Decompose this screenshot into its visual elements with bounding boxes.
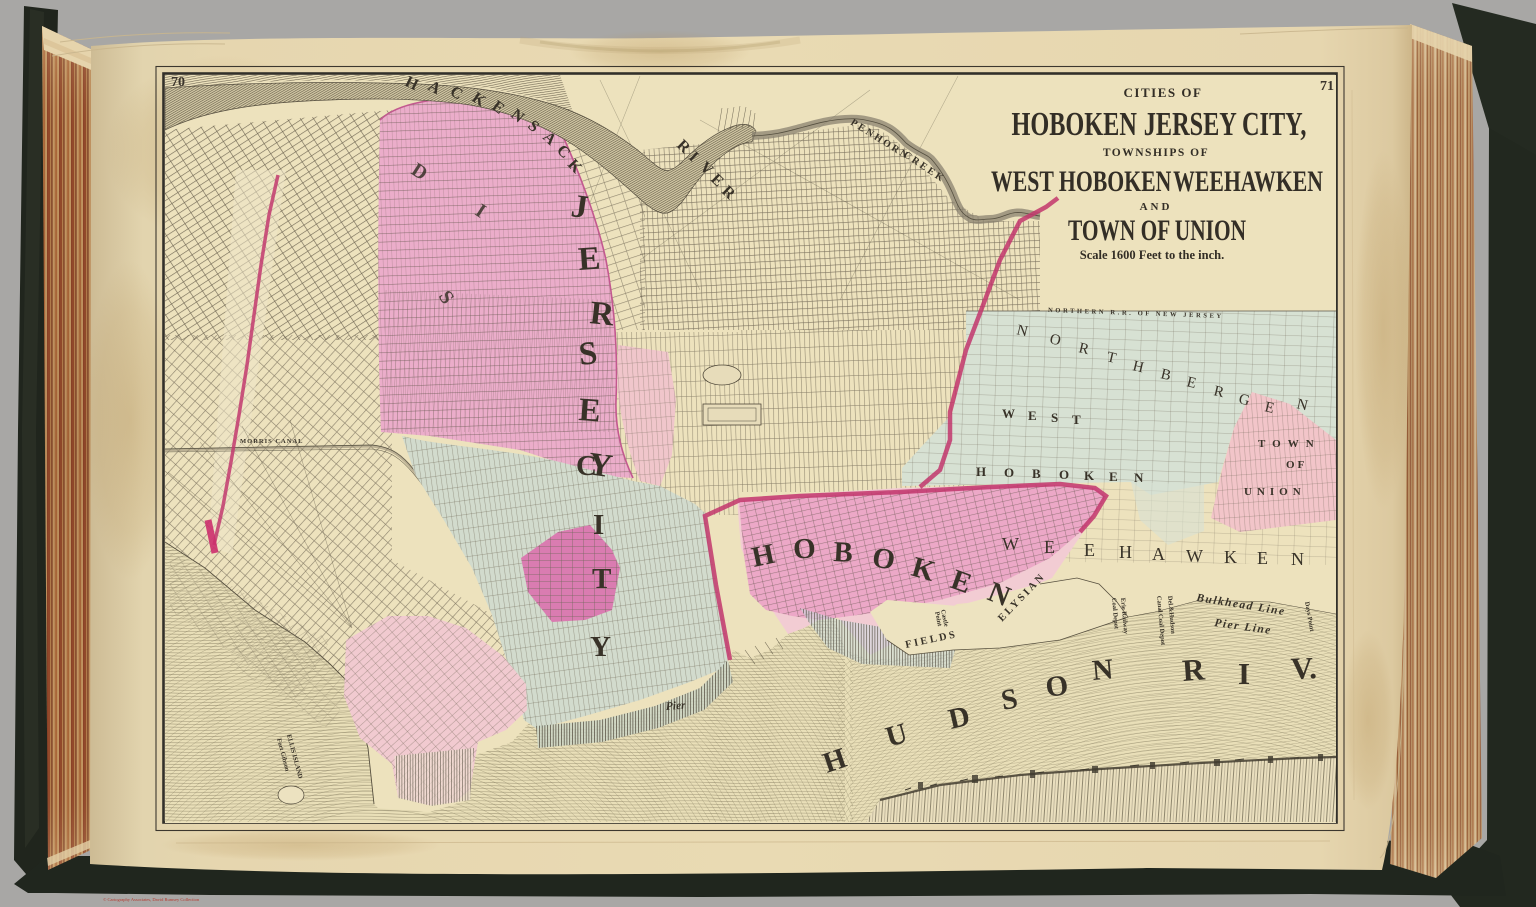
svg-text:K: K [1224,547,1237,567]
svg-text:R: R [1181,651,1206,688]
svg-text:W: W [1186,546,1203,566]
svg-text:E: E [1257,548,1268,568]
svg-text:E: E [577,392,601,429]
svg-text:O: O [1059,467,1069,482]
svg-text:Y: Y [590,631,611,663]
svg-text:A: A [1152,544,1165,564]
svg-text:OF: OF [1286,459,1307,471]
svg-text:N: N [1291,549,1304,569]
svg-text:S: S [577,335,599,373]
svg-text:H: H [976,464,986,479]
svg-text:TOWN: TOWN [1258,438,1321,450]
svg-text:T: T [1072,412,1081,427]
svg-text:E: E [1028,408,1037,423]
svg-text:H: H [1119,542,1132,562]
svg-text:T: T [592,563,611,595]
svg-text:E: E [1084,540,1095,560]
svg-text:TOWNSHIPS OF: TOWNSHIPS OF [1103,147,1209,159]
svg-text:HOBOKEN JERSEY CITY,: HOBOKEN JERSEY CITY, [1012,106,1307,143]
svg-text:AND: AND [1140,201,1173,213]
svg-text:B: B [833,536,854,569]
svg-text:WEST HOBOKEN WEEHAWKEN: WEST HOBOKEN WEEHAWKEN [991,165,1323,198]
svg-text:S: S [1051,410,1058,425]
svg-text:V.: V. [1290,650,1317,686]
svg-text:O: O [792,532,817,566]
svg-text:Scale 1600 Feet to the inch.: Scale 1600 Feet to the inch. [1080,248,1224,262]
svg-text:K: K [1084,468,1095,483]
svg-text:E: E [577,241,601,278]
svg-text:N: N [1134,470,1144,485]
svg-text:B: B [1032,466,1041,481]
svg-text:W: W [1002,406,1015,421]
svg-text:I: I [593,509,604,541]
svg-text:TOWN OF UNION: TOWN OF UNION [1068,214,1246,247]
svg-text:W: W [1002,534,1019,554]
svg-text:C: C [576,450,597,482]
svg-text:N: N [1091,653,1115,687]
svg-text:O: O [1004,465,1014,480]
svg-text:MORRIS CANAL: MORRIS CANAL [240,438,303,445]
svg-text:71: 71 [1320,79,1334,94]
svg-text:E: E [1044,537,1055,557]
svg-text:I: I [1238,656,1250,691]
svg-text:CITIES OF: CITIES OF [1124,85,1203,100]
svg-text:UNION: UNION [1244,486,1306,498]
svg-text:70: 70 [171,75,185,90]
svg-text:O: O [1044,669,1071,704]
svg-text:E: E [1109,469,1118,484]
svg-text:Pier: Pier [665,700,686,713]
